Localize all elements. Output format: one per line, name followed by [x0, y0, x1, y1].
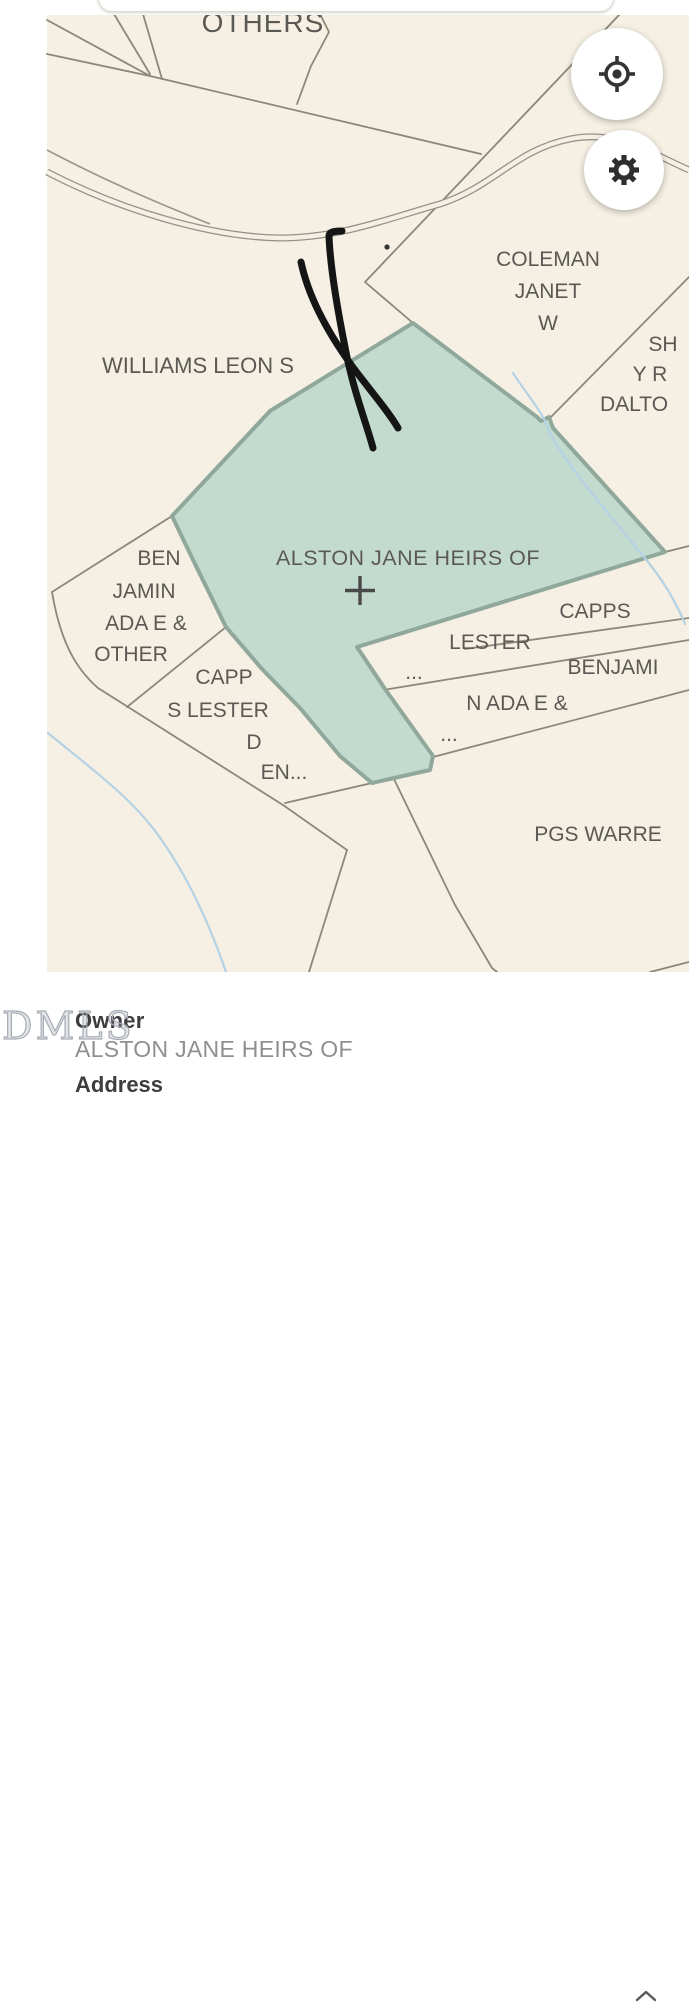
parcel-label-coleman-1: COLEMAN: [496, 248, 600, 271]
parcel-label-capps-1: CAPP: [195, 666, 252, 689]
gear-icon: [603, 149, 645, 191]
strip-label-capps: CAPPS: [559, 600, 630, 623]
parcel-label-capps-4: EN...: [261, 761, 308, 784]
locate-button[interactable]: [571, 28, 663, 120]
owner-name-value: ALSTON JANE HEIRS OF: [75, 1036, 353, 1063]
parcel-label-coleman-2: JANET: [515, 280, 582, 303]
parcel-label-benjamin-3: ADA E &: [105, 612, 187, 635]
map-canvas[interactable]: OTHERS WILLIAMS LEON S COLEMAN JANET W S…: [0, 0, 689, 972]
strip-label-ellipsis-1: ...: [405, 661, 423, 684]
parcel-label-dalton-2: Y R: [633, 363, 668, 386]
settings-button[interactable]: [584, 130, 664, 210]
parcel-label-benjamin-2: JAMIN: [113, 580, 176, 603]
parcel-label-capps-2: S LESTER: [167, 699, 269, 722]
parcel-label-benjamin-4: OTHER: [94, 643, 168, 666]
parcel-label-williams: WILLIAMS LEON S: [102, 353, 294, 378]
map-point-dot: [384, 244, 389, 249]
owner-section-title: Owner: [75, 1008, 144, 1034]
search-card-edge[interactable]: [98, 0, 614, 12]
parcel-label-benjamin-1: BEN: [137, 547, 180, 570]
strip-label-lester: LESTER: [449, 631, 531, 654]
parcel-label-pgs-warren: PGS WARRE: [534, 823, 662, 846]
selected-parcel-label: ALSTON JANE HEIRS OF: [276, 546, 540, 570]
parcel-label-capps-3: D: [246, 731, 261, 754]
collapse-sheet-button[interactable]: [632, 1984, 660, 2006]
address-section-title: Address: [75, 1072, 163, 1098]
strip-label-benjamin-2: N ADA E &: [466, 692, 568, 715]
chevron-up-icon: [635, 1989, 657, 2002]
gps-crosshair-icon: [593, 50, 641, 98]
strip-label-ellipsis-2: ...: [440, 723, 458, 746]
strip-label-benjamin-1: BENJAMI: [567, 656, 658, 679]
parcel-label-dalton-1: SH: [648, 333, 677, 356]
parcel-label-dalton-3: DALTO: [600, 393, 668, 416]
parcel-label-coleman-3: W: [538, 312, 558, 335]
